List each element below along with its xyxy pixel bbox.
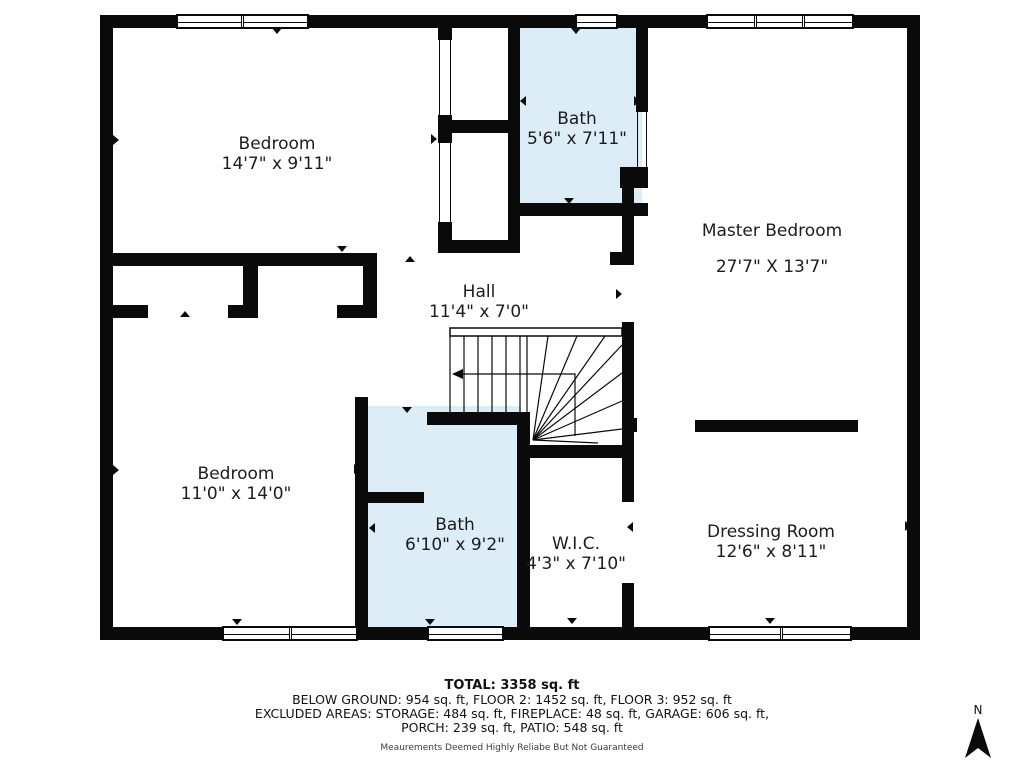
staircase <box>448 325 628 461</box>
door-marker-icon <box>765 618 775 624</box>
floor-areas-text: BELOW GROUND: 954 sq. ft, FLOOR 2: 1452 … <box>0 693 1024 707</box>
window <box>427 626 504 641</box>
room-label-bedroom-bottom-left: Bedroom 11'0" x 14'0" <box>116 464 356 504</box>
door-marker-icon <box>354 464 360 474</box>
window-divider <box>241 16 244 27</box>
window-divider <box>289 628 292 639</box>
window-pane-line <box>577 22 616 23</box>
door-marker-icon <box>425 619 435 625</box>
door-marker-icon <box>564 198 574 204</box>
door-marker-icon <box>369 523 375 533</box>
door-marker-icon <box>765 426 775 432</box>
closet-opening-line <box>450 143 451 222</box>
window <box>222 626 358 641</box>
excluded-areas-text: EXCLUDED AREAS: STORAGE: 484 sq. ft, FIR… <box>0 707 1024 721</box>
wall <box>622 583 634 627</box>
closet-opening-line <box>450 38 451 115</box>
door-marker-icon <box>405 256 415 262</box>
door-marker-icon <box>627 522 633 532</box>
room-dimensions: 14'7" x 9'11" <box>157 154 397 174</box>
north-arrow-icon <box>965 718 991 758</box>
wall <box>622 188 634 265</box>
door-marker-icon <box>337 246 347 252</box>
door-marker-icon <box>634 96 640 106</box>
door-marker-icon <box>520 96 526 106</box>
door-marker-icon <box>905 521 911 531</box>
wall <box>622 322 634 447</box>
room-label-wic: W.I.C. 4'3" x 7'10" <box>496 534 656 574</box>
window <box>176 14 309 29</box>
wall <box>622 458 634 502</box>
room-name: Hall <box>399 282 559 302</box>
room-dimensions: 27'7" X 13'7" <box>642 257 902 277</box>
window-divider <box>780 628 783 639</box>
compass: N <box>958 703 998 758</box>
window-divider <box>802 16 805 27</box>
room-label-hall: Hall 11'4" x 7'0" <box>399 282 559 322</box>
door-marker-icon <box>431 134 437 144</box>
room-label-bath-top: Bath 5'6" x 7'11" <box>497 109 657 149</box>
window <box>706 14 854 29</box>
wall <box>438 115 452 143</box>
room-name: Bedroom <box>157 134 397 154</box>
room-name: W.I.C. <box>496 534 656 554</box>
wall <box>907 15 920 640</box>
wall <box>528 445 634 458</box>
stair-direction-arrow <box>452 369 463 379</box>
closet-opening-line <box>439 38 440 115</box>
room-label-dressing-room: Dressing Room 12'6" x 8'11" <box>651 522 891 562</box>
room-dimensions: 5'6" x 7'11" <box>497 129 657 149</box>
north-label: N <box>958 703 998 717</box>
wall <box>363 253 377 318</box>
wall <box>243 266 258 318</box>
room-dimensions: 12'6" x 8'11" <box>651 542 891 562</box>
room-dimensions: 11'4" x 7'0" <box>399 302 559 322</box>
wall <box>368 492 424 503</box>
total-area-text: TOTAL: 3358 sq. ft <box>0 678 1024 693</box>
door-marker-icon <box>567 618 577 624</box>
wall <box>100 15 113 640</box>
wall <box>427 412 530 425</box>
room-name: Dressing Room <box>651 522 891 542</box>
door-marker-icon <box>402 407 412 413</box>
room-name: Bath <box>375 515 535 535</box>
room-name: Bedroom <box>116 464 356 484</box>
floor-plan: Bedroom 14'7" x 9'11" Bath 5'6" x 7'11" … <box>0 0 1024 768</box>
wall <box>337 305 364 318</box>
door-marker-icon <box>272 28 282 34</box>
door-marker-icon <box>567 448 577 454</box>
door-marker-icon <box>571 28 581 34</box>
window-pane-line <box>708 22 852 23</box>
room-label-master-bedroom: Master Bedroom 27'7" X 13'7" <box>642 221 902 277</box>
closet-opening-line <box>439 143 440 222</box>
area-summary: TOTAL: 3358 sq. ft BELOW GROUND: 954 sq.… <box>0 678 1024 753</box>
window-divider <box>754 16 757 27</box>
window <box>708 626 852 641</box>
wall <box>695 420 858 432</box>
door-marker-icon <box>113 465 119 475</box>
room-label-bedroom-top-left: Bedroom 14'7" x 9'11" <box>157 134 397 174</box>
door-marker-icon <box>232 619 242 625</box>
window <box>575 14 618 29</box>
wall <box>355 397 368 627</box>
door-marker-icon <box>113 135 119 145</box>
door-marker-icon <box>180 311 190 317</box>
room-name: Bath <box>497 109 657 129</box>
window-pane-line <box>429 634 502 635</box>
wall <box>438 222 452 253</box>
excluded-areas-text-2: PORCH: 239 sq. ft, PATIO: 548 sq. ft <box>0 721 1024 735</box>
wall <box>620 167 648 188</box>
room-dimensions: 11'0" x 14'0" <box>116 484 356 504</box>
wall <box>100 253 377 266</box>
door-marker-icon <box>616 289 622 299</box>
room-dimensions: 4'3" x 7'10" <box>496 554 656 574</box>
wall <box>113 305 148 318</box>
room-name: Master Bedroom <box>642 221 902 241</box>
disclaimer-text: Meaurements Deemed Highly Reliabe But No… <box>0 743 1024 753</box>
